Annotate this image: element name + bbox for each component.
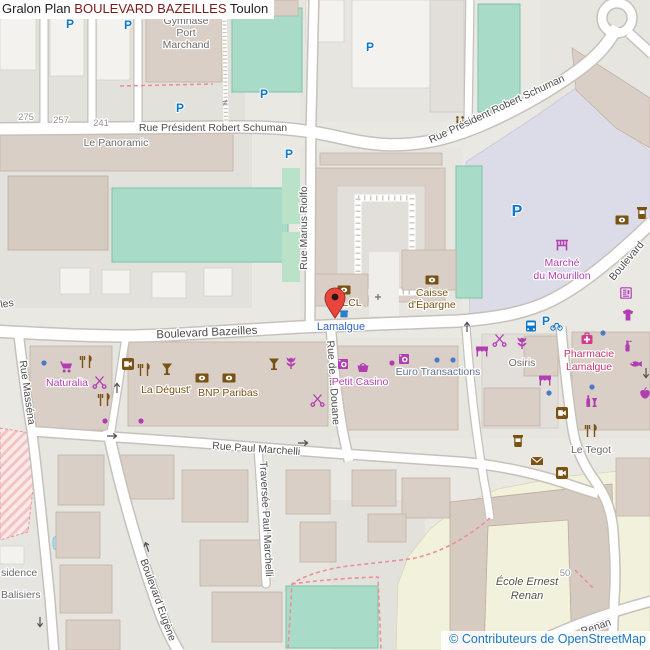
place-label-caisse-epargne: d'Épargne <box>408 298 456 311</box>
poi-dot-magenta <box>102 418 107 423</box>
house-number: 275 <box>18 112 34 123</box>
sports-pitch <box>286 586 378 648</box>
parking-icon: P <box>260 87 268 101</box>
sports-pitch <box>232 8 302 92</box>
bank-icon <box>616 216 629 225</box>
poi-dot-blue <box>41 360 46 365</box>
post-box-icon <box>531 457 543 465</box>
map-canvas[interactable]: P P P P P P P P ≠ <box>0 0 650 650</box>
place-label-euro-transactions: Euro Transactions <box>396 366 481 378</box>
place-label-degust: La Dégust' <box>141 384 191 396</box>
gate-icon: ≠ <box>222 98 228 109</box>
parking-icon: P <box>285 147 293 161</box>
place-label-marche: Marché <box>544 257 579 269</box>
laundry-icon <box>338 359 348 369</box>
cinema-icon <box>556 467 568 479</box>
parking-icon: P <box>366 40 374 54</box>
parking-icon: P <box>124 18 132 32</box>
osm-attribution-link[interactable]: © Contributeurs de OpenStreetMap <box>441 631 650 650</box>
house-number: 50 <box>560 568 571 579</box>
sports-pitch <box>112 188 288 262</box>
place-label-caisse-epargne: Caisse <box>416 287 448 299</box>
poi-dot-magenta <box>138 418 143 423</box>
house-number: 257 <box>53 115 69 126</box>
bank-icon <box>196 374 209 383</box>
street-label-riolfo: Rue Marius Riolfo <box>298 186 310 270</box>
place-label-petit-casino: Petit Casino <box>332 376 389 388</box>
place-label-gymnase: Port <box>176 27 195 39</box>
parking-icon: P <box>176 101 184 115</box>
place-label-pharmacie: Pharmacie <box>564 348 614 360</box>
place-label-pharmacie: Lamalgue <box>566 361 612 373</box>
place-label-tegot: Le Tegot <box>571 444 611 456</box>
place-label-ecole: École Ernest <box>496 575 559 588</box>
bicycle-parking-icon: P <box>542 314 550 328</box>
title-suffix: Toulon <box>230 1 268 16</box>
bus-stop-icon <box>526 321 536 332</box>
title-highlight: BOULEVARD BAZEILLES <box>74 1 226 16</box>
cinema-icon <box>556 407 568 419</box>
map-title: Gralon Plan BOULEVARD BAZEILLES Toulon <box>0 0 274 19</box>
parking-icon: P <box>512 203 523 220</box>
grass-strip <box>456 166 482 298</box>
poi-dot-magenta <box>389 360 394 365</box>
atm-icon <box>513 435 523 447</box>
place-label-ecole: Renan <box>511 590 543 602</box>
poi-dot-blue <box>434 357 439 362</box>
place-label-gymnase: Marchand <box>163 39 210 51</box>
place-label-residence-fragment: sidence <box>1 567 37 579</box>
poi-dot-blue <box>546 390 551 395</box>
bus-stop-label-lamalgue: Lamalgue <box>317 321 365 333</box>
place-label-panoramic: Le Panoramic <box>84 137 149 149</box>
street-label-bazeilles-fragment: les <box>0 297 15 311</box>
laundry-icon <box>399 354 409 364</box>
cinema-icon <box>122 358 134 370</box>
place-label-residence-fragment: Balisiers <box>1 589 41 601</box>
place-label-naturalia: Naturalia <box>46 377 88 389</box>
recycling-icon <box>340 310 348 317</box>
place-label-osiris: Osiris <box>509 357 536 369</box>
atm-icon <box>637 207 647 219</box>
poi-dot-blue <box>600 330 605 335</box>
poi-dot-blue <box>589 384 594 389</box>
map-screenshot: P P P P P P P P ≠ <box>0 0 650 650</box>
house-number: 241 <box>93 118 109 129</box>
place-label-bnp: BNP Paribas <box>198 387 258 399</box>
street-label-schuman-1: Rue Président Robert Schuman <box>139 122 287 134</box>
title-prefix: Gralon Plan <box>2 1 71 16</box>
place-label-marche: du Mourillon <box>533 270 590 282</box>
bank-icon <box>223 374 236 383</box>
poi-dot-blue <box>450 357 455 362</box>
parking-icon: P <box>66 17 74 31</box>
bank-icon <box>426 276 439 285</box>
